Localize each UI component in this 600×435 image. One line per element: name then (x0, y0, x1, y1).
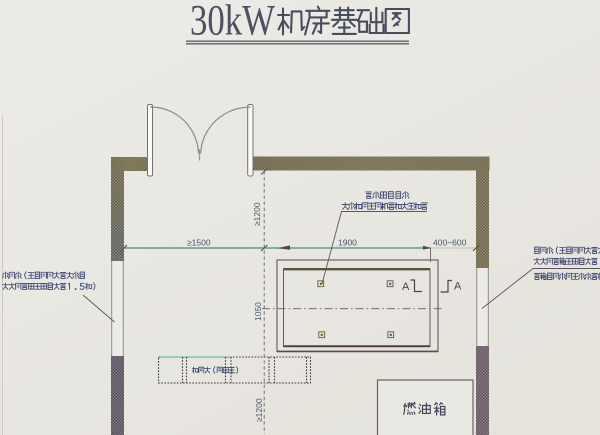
svg-text:A: A (454, 281, 462, 293)
svg-text:1050: 1050 (253, 302, 263, 321)
svg-text:30kW: 30kW (190, 0, 275, 45)
svg-text:400~600: 400~600 (433, 238, 467, 248)
svg-text:≥1500: ≥1500 (187, 238, 211, 248)
svg-text:≥1200: ≥1200 (254, 398, 264, 422)
svg-text:≥1200: ≥1200 (252, 202, 262, 226)
svg-text:A: A (402, 281, 410, 293)
svg-text:1900: 1900 (338, 238, 357, 248)
